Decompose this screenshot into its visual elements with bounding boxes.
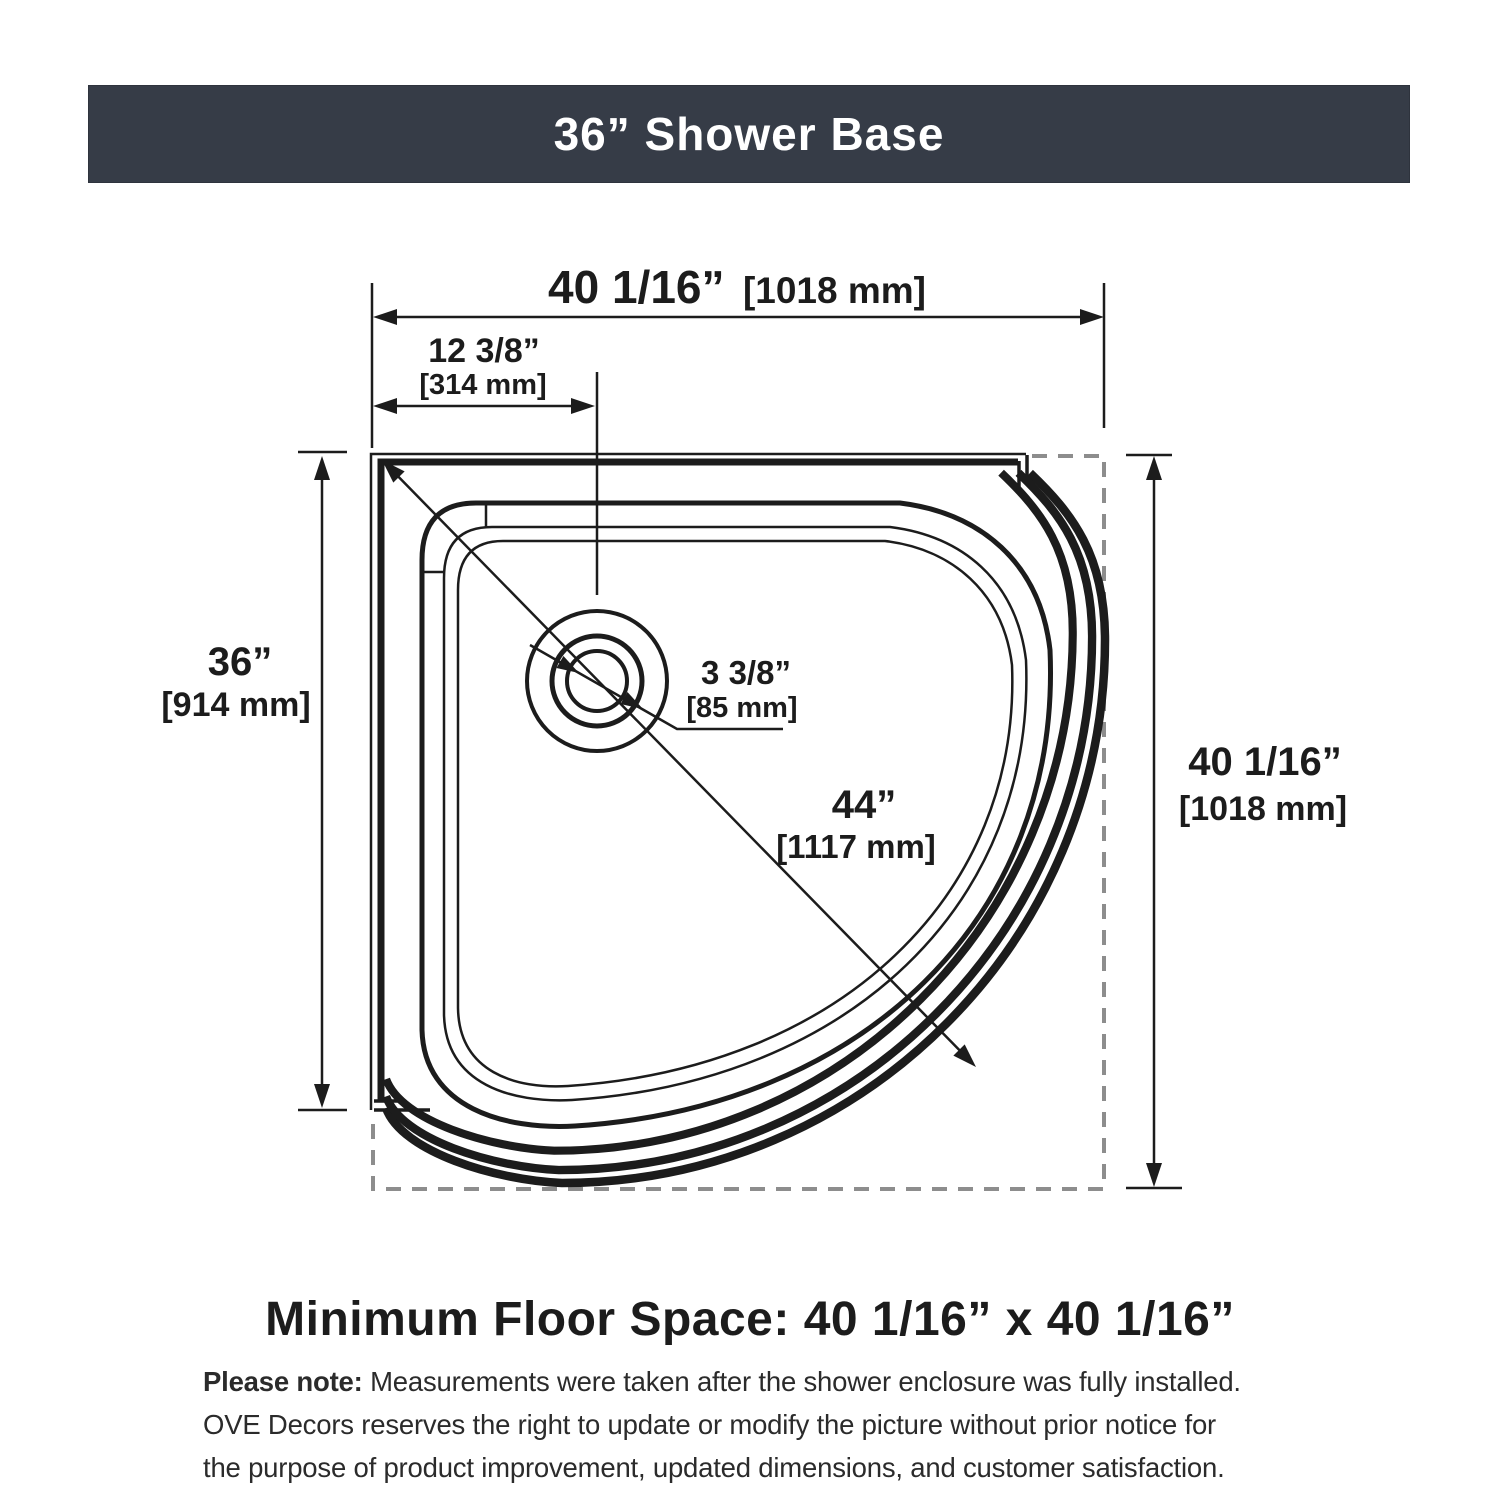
base-outline	[371, 454, 1105, 1183]
dim-drain-offset-label-mm: [314 mm]	[419, 369, 546, 401]
dim-diagonal-label: 44”	[832, 783, 897, 827]
note-paragraph: Please note: Measurements were taken aft…	[203, 1360, 1323, 1489]
dim-left-height-label: 36”	[208, 640, 273, 684]
note-line-1: Please note: Measurements were taken aft…	[203, 1360, 1323, 1403]
note-line-3: the purpose of product improvement, upda…	[203, 1446, 1323, 1489]
technical-drawing: 40 1/16” [1018 mm] 12 3/8” [314 mm] 36” …	[0, 0, 1500, 1500]
note-line-2: OVE Decors reserves the right to update …	[203, 1403, 1323, 1446]
dim-top-width-label: 40 1/16” [1018 mm]	[548, 261, 926, 313]
floor-space-dashed-outline	[373, 456, 1104, 1189]
dim-right-height-label: 40 1/16”	[1188, 740, 1341, 784]
dim-drain-diameter-label: 3 3/8”	[701, 654, 791, 691]
minimum-floor-space-heading: Minimum Floor Space: 40 1/16” x 40 1/16”	[0, 1292, 1500, 1347]
note-line-1-text: Measurements were taken after the shower…	[370, 1366, 1241, 1397]
dim-diagonal-label-mm: [1117 mm]	[776, 828, 936, 865]
dim-left-height-label-mm: [914 mm]	[161, 686, 310, 724]
dim-drain-offset-label: 12 3/8”	[428, 332, 540, 370]
page: 36” Shower Base	[0, 0, 1500, 1500]
dim-left-height: 36” [914 mm]	[161, 452, 347, 1110]
dim-drain-diameter-label-mm: [85 mm]	[686, 692, 797, 724]
note-bold-prefix: Please note:	[203, 1366, 363, 1397]
dim-diagonal: 44” [1117 mm]	[376, 454, 981, 1072]
dim-right-height: 40 1/16” [1018 mm]	[1126, 455, 1347, 1188]
dim-right-height-label-mm: [1018 mm]	[1179, 790, 1347, 828]
